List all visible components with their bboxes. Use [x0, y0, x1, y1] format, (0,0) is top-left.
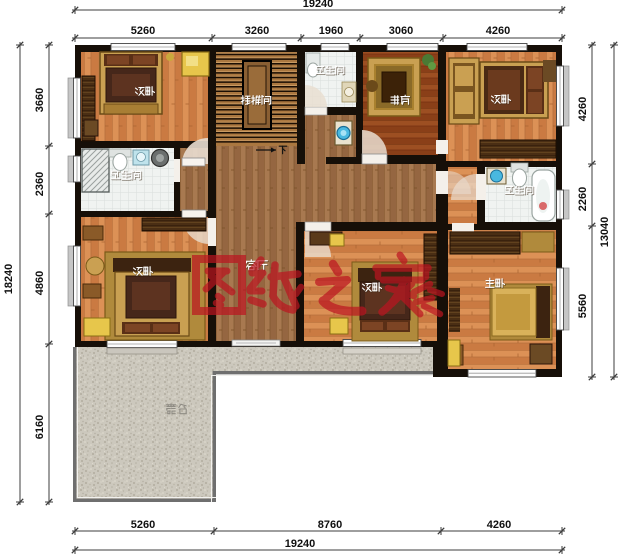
svg-text:6160: 6160	[34, 415, 46, 439]
svg-text:1960: 1960	[319, 25, 343, 37]
svg-text:5260: 5260	[131, 519, 155, 531]
svg-text:2260: 2260	[577, 187, 589, 211]
svg-text:2360: 2360	[34, 172, 46, 196]
svg-text:18240: 18240	[3, 264, 15, 295]
svg-text:5560: 5560	[577, 294, 589, 318]
svg-text:5260: 5260	[131, 25, 155, 37]
svg-text:4260: 4260	[487, 519, 511, 531]
svg-text:3060: 3060	[389, 25, 413, 37]
svg-text:19240: 19240	[303, 0, 334, 10]
svg-text:4860: 4860	[34, 271, 46, 295]
svg-text:8760: 8760	[318, 519, 342, 531]
svg-text:3260: 3260	[245, 25, 269, 37]
svg-text:4260: 4260	[486, 25, 510, 37]
svg-text:3660: 3660	[34, 88, 46, 112]
svg-text:19240: 19240	[285, 538, 316, 550]
svg-text:13040: 13040	[599, 217, 611, 248]
svg-text:4260: 4260	[577, 97, 589, 121]
